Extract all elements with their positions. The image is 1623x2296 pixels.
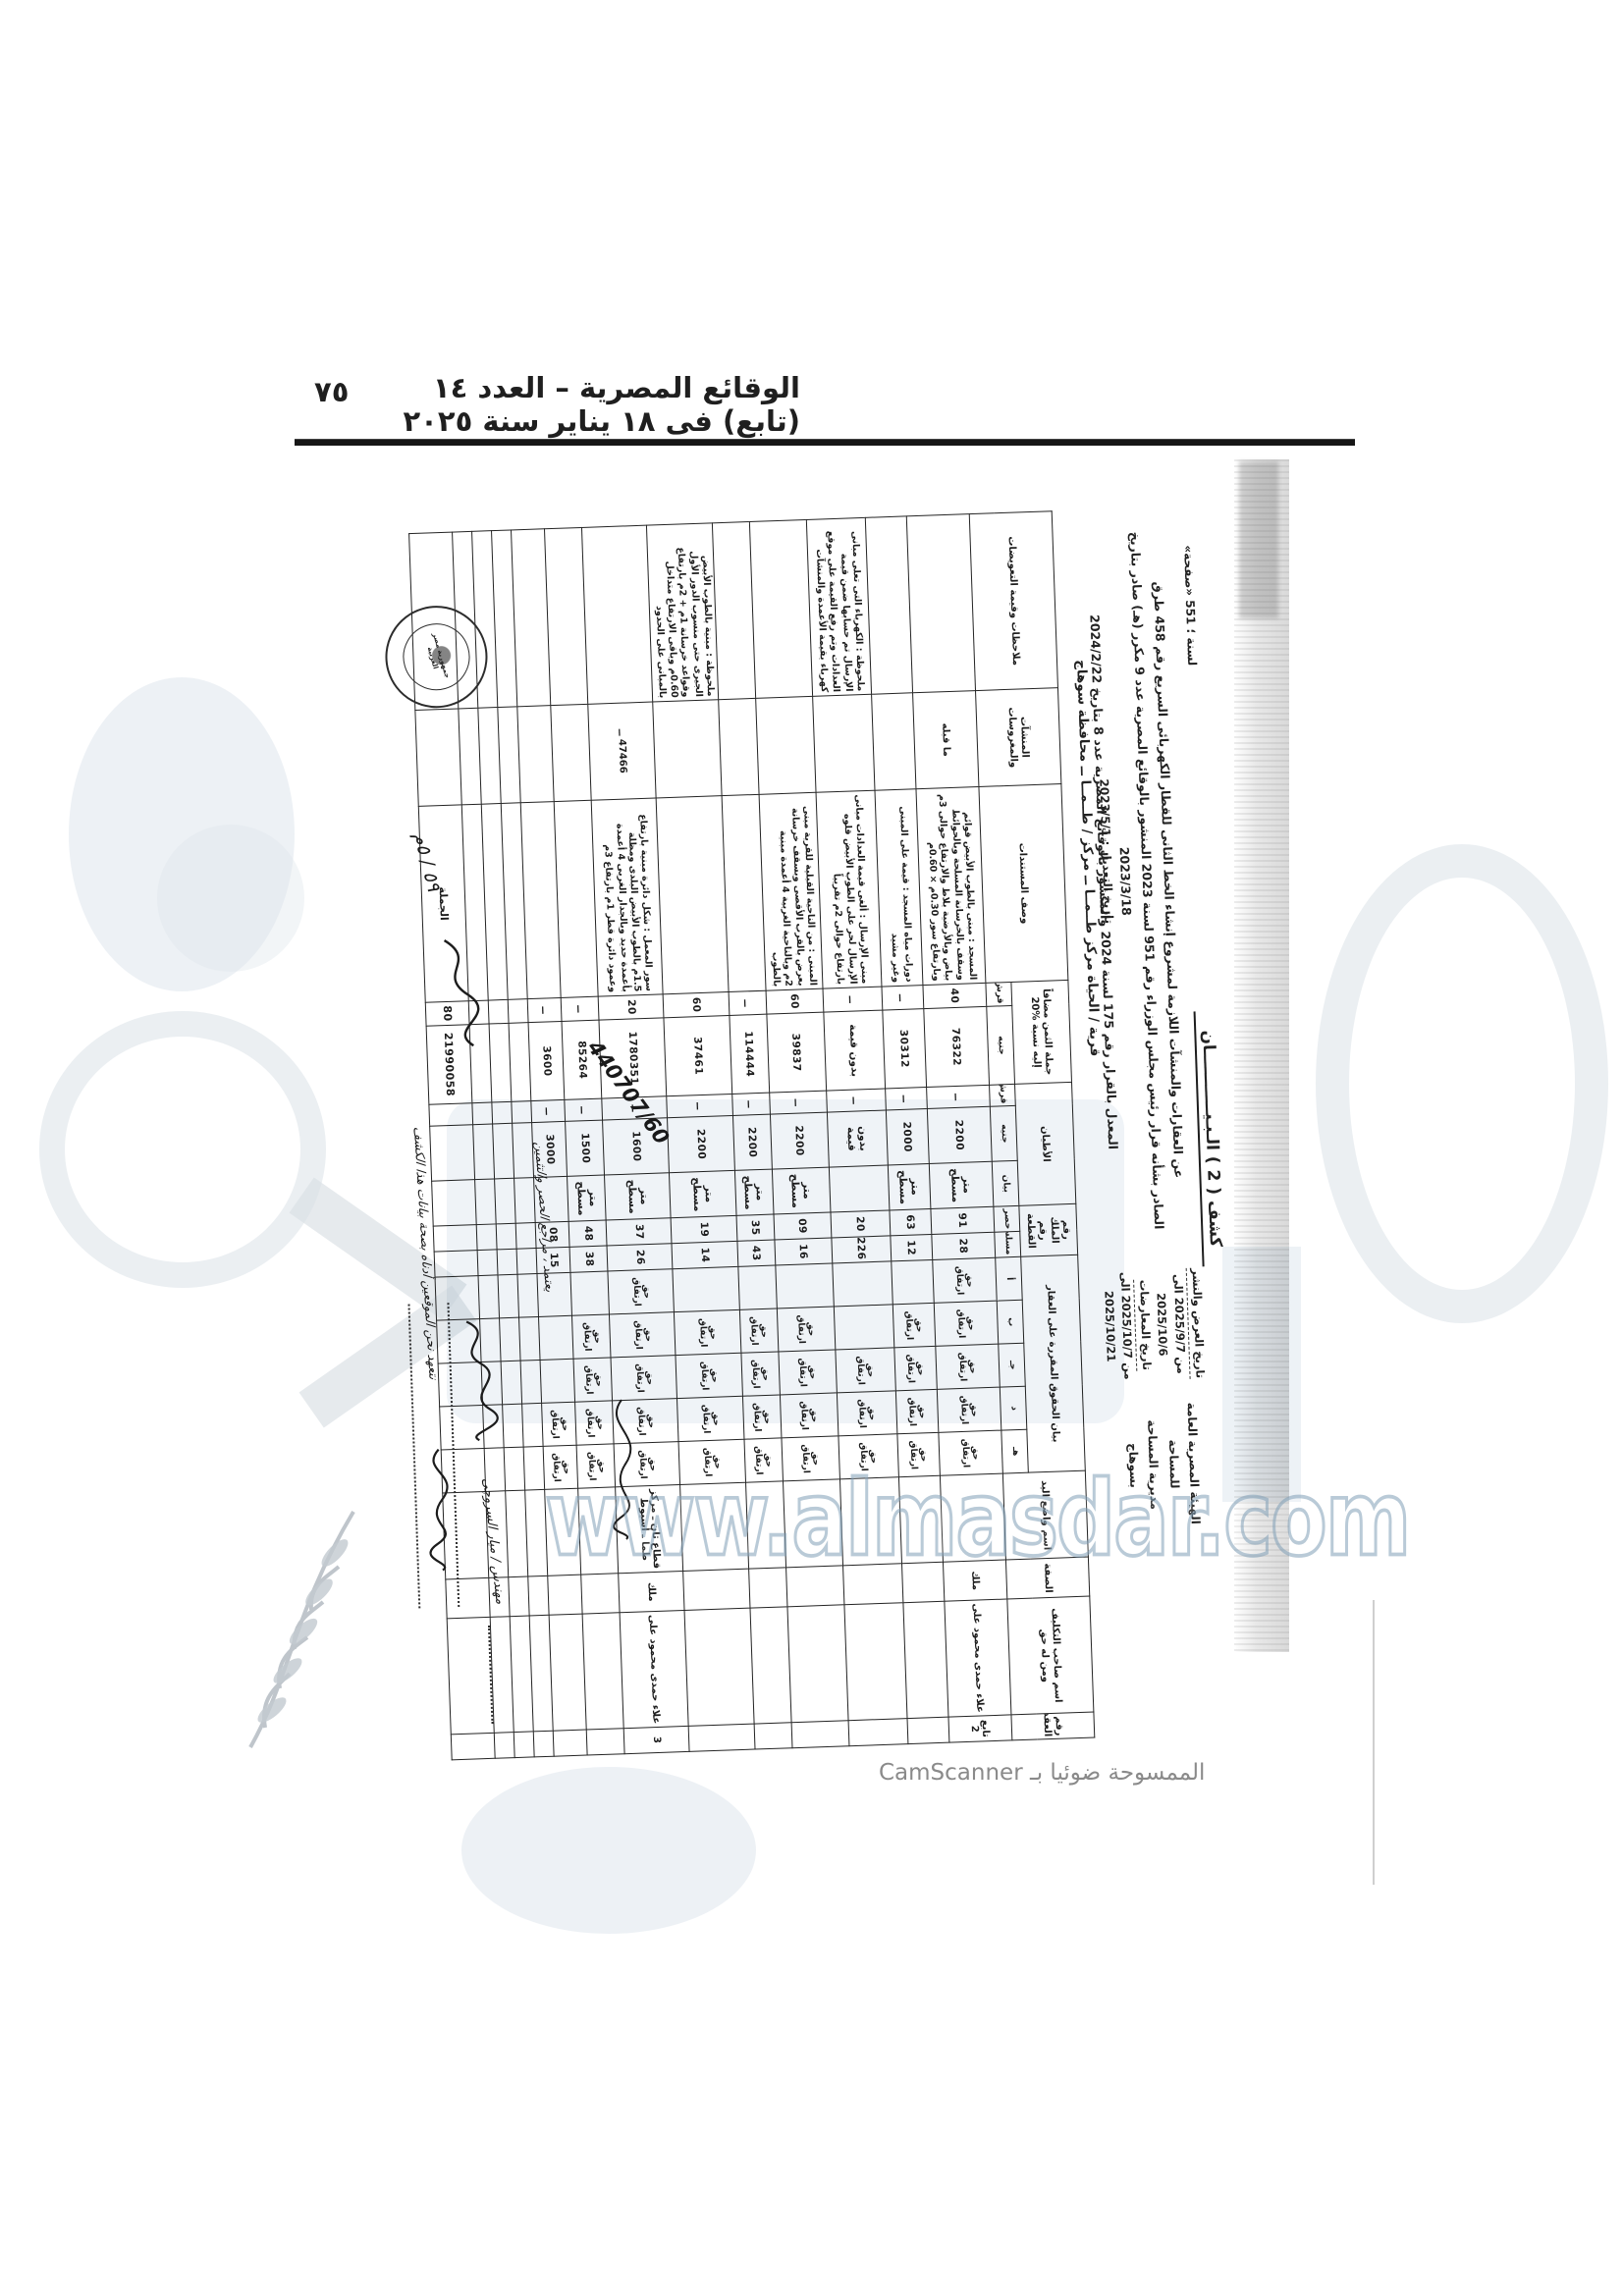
- table-cell: [523, 1446, 545, 1490]
- table-cell: [504, 1447, 525, 1491]
- table-cell: [512, 529, 551, 707]
- table-cell: [787, 1605, 848, 1723]
- table-cell: 76322: [924, 1006, 990, 1087]
- table-header-cell: وصف المستندات: [979, 784, 1068, 984]
- table-header-cell: ملاحظات وقيمة التعويضات: [969, 511, 1057, 691]
- table-header-cell: جملة الثمن مضافاً إليه نسبة %20: [1011, 980, 1072, 1084]
- scan-edge-line: [1373, 1600, 1375, 1885]
- table-cell: [906, 514, 975, 693]
- table-cell: المبنى : من الناحية القبلية للقرية مبنى …: [759, 792, 823, 990]
- table-cell: [498, 707, 520, 804]
- table-cell: [514, 1732, 535, 1758]
- table-cell: 20: [598, 994, 664, 1020]
- watermark-blob: [69, 677, 295, 991]
- table-cell: 60: [663, 992, 730, 1018]
- table-cell: [506, 1490, 528, 1577]
- table-cell: [528, 1575, 549, 1616]
- table-cell: ــ: [561, 996, 599, 1021]
- table-cell: 47466 ــ: [588, 702, 656, 800]
- table-cell: [517, 706, 554, 803]
- table-cell: 39837: [767, 1012, 827, 1093]
- publish-label: تاريخ العرض والنشر: [1185, 1268, 1208, 1379]
- table-cell: ما قبله: [913, 691, 979, 789]
- table-cell: [509, 1023, 531, 1102]
- stamp-text: جمهورية مصر العربية: [395, 615, 477, 698]
- table-cell: [452, 1733, 496, 1760]
- table-cell: [586, 1729, 624, 1755]
- table-cell: دورات مياه المسجد : قيمة على المبنى وغير…: [875, 789, 923, 987]
- watermark-tint: [447, 1099, 1124, 1423]
- table-cell: [791, 1721, 849, 1748]
- table-cell: [684, 1608, 754, 1726]
- table-cell: [865, 516, 912, 694]
- table-header-cell: رقم العقد: [1011, 1712, 1095, 1740]
- table-cell: [489, 1023, 512, 1102]
- signature-icon: [414, 1445, 473, 1575]
- table-cell: [750, 1607, 791, 1724]
- table-cell: ــ: [527, 997, 562, 1022]
- table-cell: 3600: [528, 1021, 565, 1100]
- table-cell: علاء حمدى محمود على: [945, 1599, 1011, 1717]
- table-cell: [756, 696, 816, 794]
- laurel-branch-icon: [221, 1492, 388, 1757]
- table-header-cell: اسم صاحب التكليف ومن له حق: [1007, 1596, 1094, 1715]
- form-reference: لسنة ؛ 551 «صفحة»: [1181, 545, 1199, 666]
- table-cell: [459, 708, 481, 805]
- table-cell: [529, 1615, 553, 1732]
- watermark-swoosh: [1316, 844, 1608, 1323]
- table-cell: [656, 796, 729, 994]
- table-cell: [554, 1730, 588, 1756]
- table-cell: [510, 1616, 533, 1733]
- table-cell: [520, 802, 561, 999]
- table-cell: [508, 999, 528, 1024]
- table-cell: [907, 1717, 949, 1743]
- table-cell: [582, 1613, 623, 1730]
- table-cell: 3: [623, 1726, 689, 1753]
- table-cell: [415, 709, 461, 806]
- table-cell: ــ: [882, 986, 924, 1010]
- table-cell: بدون قيمة: [824, 1010, 886, 1091]
- table-cell: [844, 1603, 907, 1721]
- table-cell: ملحوظة : مبنية بالطوب الأبيض الجيرى حتى …: [647, 523, 719, 702]
- table-cell: [489, 999, 510, 1024]
- table-cell: [749, 519, 812, 698]
- table-header-cell: المنشآت والمغروسات: [976, 688, 1061, 787]
- watermark-ring: [39, 1011, 326, 1288]
- watermark-blob: [157, 825, 304, 972]
- gazette-header: الوقائع المصرية – العدد ١٤ (تابع) فى ١٨ …: [388, 371, 800, 438]
- scan-edge-blotch: [1239, 461, 1278, 618]
- table-cell: [712, 521, 755, 699]
- table-cell: [554, 800, 598, 997]
- table-cell: [446, 1577, 490, 1619]
- table-cell: [551, 704, 591, 801]
- table-cell: [719, 698, 759, 795]
- table-cell: [548, 1575, 582, 1615]
- header-rule: [295, 439, 1355, 446]
- watermark-url: www.almasdar.com: [545, 1459, 1409, 1579]
- table-cell: المسجد : مبنى بالطوب الأبيض قوائم وسقف ب…: [916, 786, 986, 985]
- table-cell: [813, 694, 875, 792]
- table-cell: 60: [766, 988, 824, 1014]
- table-subheader-cell: قرش: [986, 982, 1012, 1006]
- table-cell: ــ: [823, 987, 883, 1012]
- table-cell: 30312: [883, 1009, 927, 1089]
- table-cell: [545, 527, 588, 705]
- table-cell: [581, 1574, 620, 1614]
- table-cell: ــ: [729, 990, 767, 1015]
- table-cell: [754, 1723, 792, 1749]
- table-cell: [688, 1724, 755, 1751]
- objection-label: تاريخ المعارضات: [1133, 1279, 1155, 1370]
- table-cell: [495, 1733, 515, 1759]
- table-cell: [582, 525, 653, 704]
- table-cell: [509, 1576, 529, 1617]
- table-cell: علاء حمدى محمود على: [620, 1610, 688, 1728]
- table-cell: [549, 1614, 586, 1731]
- table-cell: [653, 700, 722, 798]
- gazette-page: الوقائع المصرية – العدد ١٤ (تابع) فى ١٨ …: [0, 0, 1623, 2296]
- table-cell: [848, 1719, 908, 1746]
- table-cell: 37461: [664, 1016, 731, 1096]
- table-cell: [903, 1601, 948, 1718]
- signature-icon: [426, 934, 489, 1053]
- table-cell: سور المعمل : شكل دائرة مبنية بارتفاع 1.5…: [591, 798, 663, 996]
- form-title: كشف ( 2 ) الـبـيـــــــــــان: [1194, 1011, 1226, 1267]
- table-cell: 114444: [730, 1014, 770, 1094]
- table-cell: [722, 794, 766, 991]
- table-cell: تابع 2: [948, 1715, 1012, 1742]
- table-cell: مبنى الإرسال : ألغى قيمة العدادات مبانى …: [816, 790, 882, 988]
- table-cell: [534, 1731, 555, 1757]
- page-number: ٧٥: [314, 375, 349, 408]
- table-cell: 40: [923, 983, 987, 1008]
- table-subheader-cell: جنيه: [987, 1005, 1015, 1085]
- table-cell: [490, 1617, 514, 1734]
- table-cell: ملحوظة : الكهرباء التى تعلى مبانى الإرسا…: [806, 517, 871, 696]
- camscanner-note: الممسوحة ضوئيا بـ CamScanner: [879, 1760, 1205, 1786]
- table-cell: [478, 708, 501, 805]
- table-cell: [872, 693, 916, 790]
- publish-value: من 2025/9/7 الى 2025/10/6: [1151, 1243, 1190, 1406]
